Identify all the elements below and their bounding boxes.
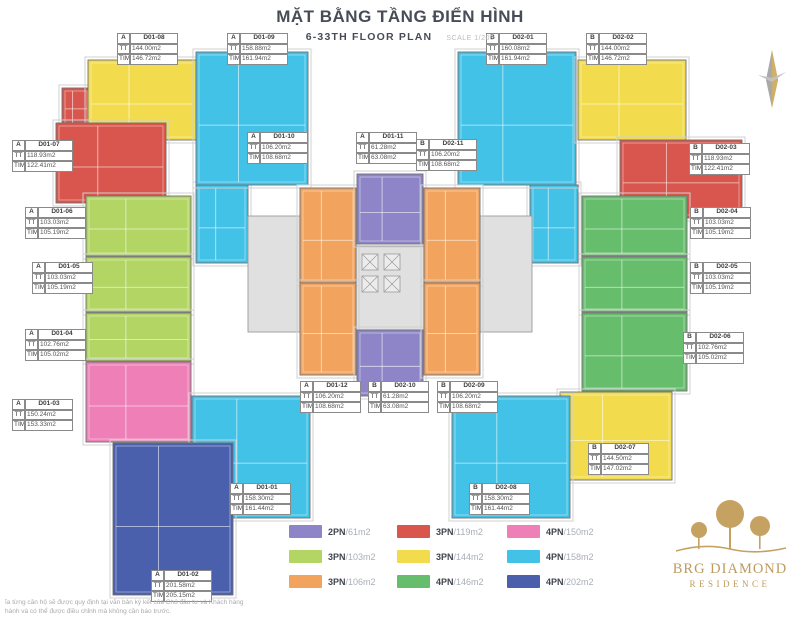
legend-item-4PN-146m2: 4PN/146m2 <box>397 575 507 588</box>
disclaimer-line-2: hành và có thể được điều chỉnh mà không … <box>5 607 243 616</box>
legend: 2PN/61m23PN/119m24PN/150m23PN/103m23PN/1… <box>289 519 619 594</box>
unit-D01-03 <box>86 362 191 442</box>
unit-D01-07 <box>56 123 166 203</box>
legend-item-3PN-106m2: 3PN/106m2 <box>289 575 397 588</box>
unit-D02-11 <box>424 188 480 283</box>
unit-D01-11 <box>357 174 423 244</box>
legend-text: 3PN/119m2 <box>436 527 483 537</box>
unit-D01-02 <box>113 443 233 595</box>
disclaimer: ĩa từng căn hộ sẽ được quy định tại văn … <box>5 598 243 616</box>
legend-item-4PN-202m2: 4PN/202m2 <box>507 575 619 588</box>
legend-swatch <box>397 525 430 538</box>
brg-logo: BRG DIAMOND RESIDENCE <box>662 497 798 589</box>
legend-item-3PN-103m2: 3PN/103m2 <box>289 550 397 563</box>
floor-plan-poster: MẶT BẰNG TẦNG ĐIỂN HÌNH 6-33TH FLOOR PLA… <box>0 0 800 624</box>
legend-item-4PN-158m2: 4PN/158m2 <box>507 550 619 563</box>
brg-logo-trees-icon <box>668 497 792 555</box>
legend-item-3PN-144m2: 3PN/144m2 <box>397 550 507 563</box>
legend-swatch <box>397 550 430 563</box>
unit-D02-06 <box>582 313 687 391</box>
legend-item-2PN-61m2: 2PN/61m2 <box>289 525 397 538</box>
unit-D02-01 <box>458 52 576 185</box>
legend-text: 3PN/103m2 <box>328 552 376 562</box>
legend-text: 4PN/150m2 <box>546 527 594 537</box>
unit-D01-04 <box>86 313 191 361</box>
page-title: MẶT BẰNG TẦNG ĐIỂN HÌNH <box>0 7 800 27</box>
floor-plan-label: 6-33TH FLOOR PLAN <box>306 31 433 43</box>
legend-item-4PN-150m2: 4PN/150m2 <box>507 525 619 538</box>
legend-text: 3PN/144m2 <box>436 552 484 562</box>
legend-swatch <box>289 525 322 538</box>
unit-D02-10 <box>357 330 423 396</box>
unit-area-extra-1 <box>530 185 578 263</box>
unit-area-extra-0 <box>196 185 248 263</box>
legend-text: 3PN/106m2 <box>328 577 376 587</box>
brg-logo-title: BRG DIAMOND <box>662 561 798 578</box>
unit-D02-05 <box>582 257 687 312</box>
unit-D02-04 <box>582 196 687 256</box>
core-area-0 <box>248 216 300 332</box>
legend-text: 4PN/146m2 <box>436 577 484 587</box>
brg-logo-subtitle: RESIDENCE <box>662 579 798 589</box>
unit-D01-12 <box>300 283 356 375</box>
unit-D02-07 <box>560 392 672 480</box>
unit-D01-05 <box>86 257 191 312</box>
unit-D01-06 <box>86 196 191 256</box>
scale-label: SCALE 1/200 <box>446 35 494 42</box>
unit-D02-09 <box>424 283 480 375</box>
page-subtitle: 6-33TH FLOOR PLAN SCALE 1/200 <box>0 31 800 43</box>
unit-D01-10 <box>300 188 356 283</box>
legend-swatch <box>289 575 322 588</box>
legend-swatch <box>507 525 540 538</box>
legend-swatch <box>507 550 540 563</box>
legend-text: 2PN/61m2 <box>328 527 371 537</box>
unit-D02-02 <box>578 60 686 140</box>
legend-swatch <box>507 575 540 588</box>
core-area-1 <box>480 216 532 332</box>
legend-text: 4PN/202m2 <box>546 577 594 587</box>
compass-icon <box>752 48 796 110</box>
legend-swatch <box>289 550 322 563</box>
legend-item-3PN-119m2: 3PN/119m2 <box>397 525 507 538</box>
unit-D01-09 <box>196 52 308 185</box>
unit-D02-08 <box>452 396 570 518</box>
legend-text: 4PN/158m2 <box>546 552 594 562</box>
disclaimer-line-1: ĩa từng căn hộ sẽ được quy định tại văn … <box>5 598 243 607</box>
header: MẶT BẰNG TẦNG ĐIỂN HÌNH 6-33TH FLOOR PLA… <box>0 7 800 43</box>
legend-swatch <box>397 575 430 588</box>
